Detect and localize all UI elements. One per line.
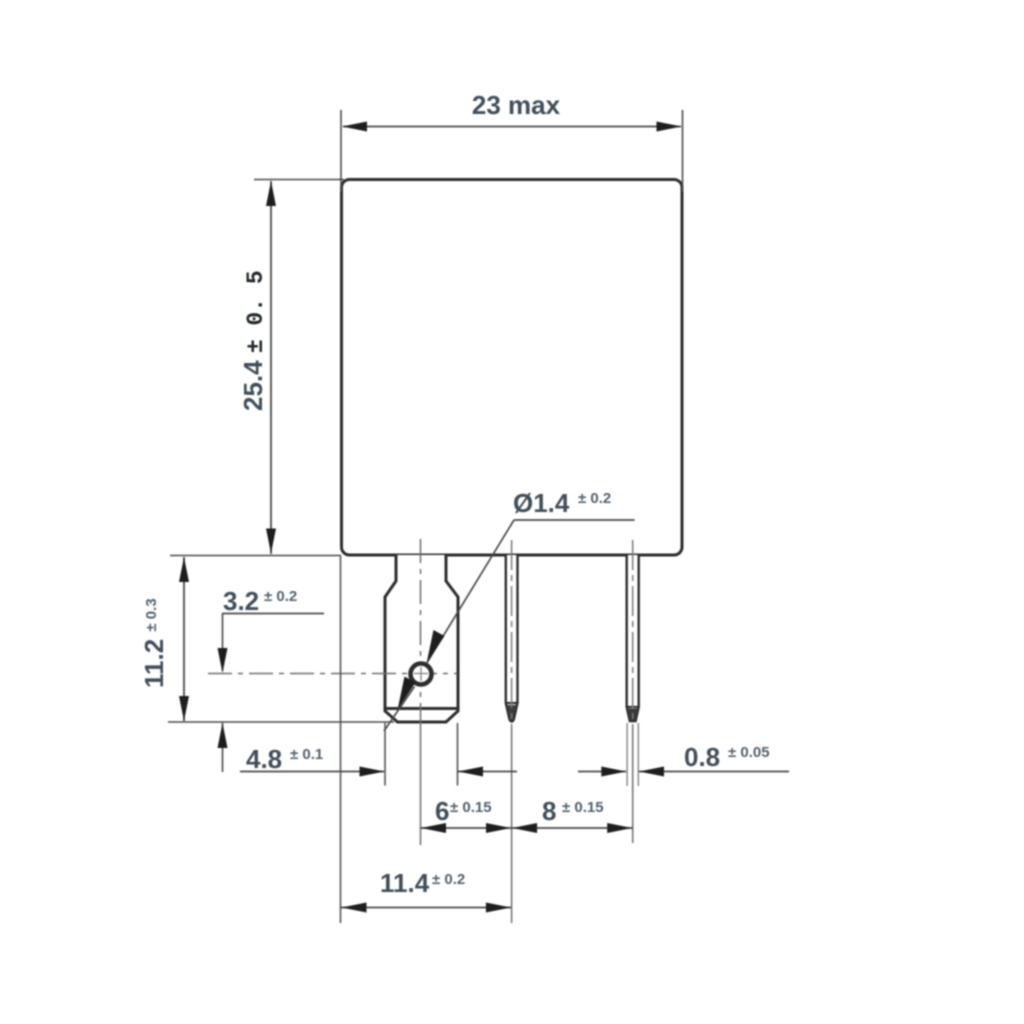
svg-text:0.8: 0.8 [684,742,720,772]
svg-text:Ø1.4: Ø1.4 [513,488,570,518]
svg-text:± 0.15: ± 0.15 [562,799,604,816]
svg-text:23 max: 23 max [472,90,561,120]
svg-text:± 0.2: ± 0.2 [264,588,297,605]
svg-text:± 0.15: ± 0.15 [450,799,492,816]
svg-text:± 0.2: ± 0.2 [432,871,465,888]
svg-text:3.2: 3.2 [223,586,259,616]
svg-text:± 0.2: ± 0.2 [578,490,611,507]
svg-text:11.2 ± 0.3: 11.2 ± 0.3 [139,598,169,688]
svg-text:6: 6 [435,796,449,826]
svg-text:4.8: 4.8 [246,744,282,774]
svg-text:25.4 ± 0. 5: 25.4 ± 0. 5 [238,270,269,411]
svg-text:± 0.05: ± 0.05 [728,744,770,761]
svg-text:8: 8 [542,796,556,826]
svg-text:11.4: 11.4 [380,868,430,898]
svg-text:± 0.1: ± 0.1 [290,746,323,763]
